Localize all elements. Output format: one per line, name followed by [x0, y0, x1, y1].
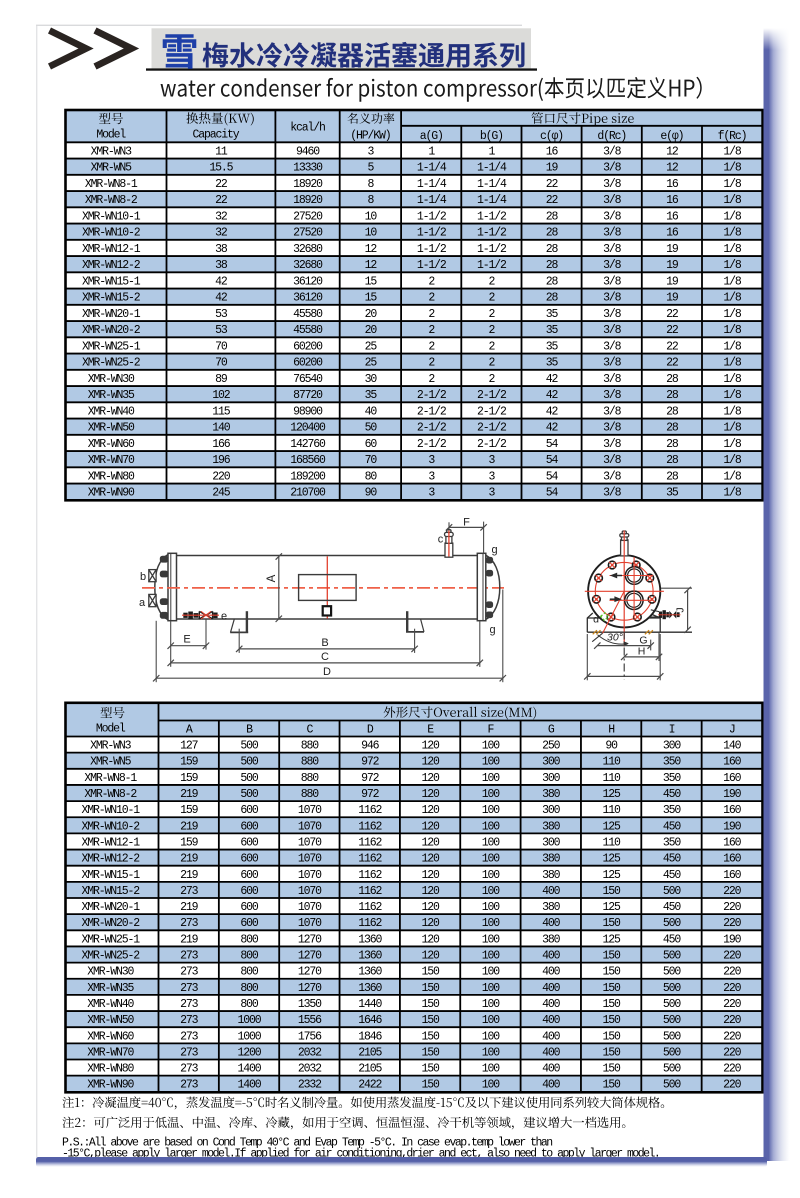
svg-text:273: 273	[180, 1014, 199, 1027]
svg-text:400: 400	[542, 1079, 561, 1092]
svg-text:28: 28	[546, 259, 559, 272]
svg-text:28: 28	[666, 438, 679, 451]
svg-text:45580: 45580	[293, 324, 323, 337]
svg-text:1000: 1000	[237, 1014, 261, 1027]
svg-text:500: 500	[663, 998, 682, 1011]
svg-text:3/8: 3/8	[603, 340, 622, 353]
svg-text:12: 12	[666, 162, 679, 175]
svg-text:XMR-WN15-1: XMR-WN15-1	[81, 869, 140, 882]
svg-text:20: 20	[365, 324, 378, 337]
svg-text:500: 500	[663, 1014, 682, 1027]
svg-text:220: 220	[723, 901, 742, 914]
svg-text:54: 54	[546, 454, 559, 467]
svg-text:219: 219	[180, 820, 199, 833]
svg-text:102: 102	[212, 389, 231, 402]
svg-text:XMR-WN30: XMR-WN30	[88, 373, 135, 386]
svg-text:120: 120	[421, 885, 440, 898]
svg-text:120: 120	[421, 853, 440, 866]
svg-text:800: 800	[240, 982, 259, 995]
svg-text:1/8: 1/8	[723, 340, 742, 353]
svg-text:90: 90	[605, 740, 618, 753]
svg-text:273: 273	[180, 1063, 199, 1076]
svg-text:40: 40	[365, 405, 378, 418]
svg-text:127: 127	[180, 740, 198, 753]
svg-text:110: 110	[602, 772, 621, 785]
svg-text:880: 880	[301, 788, 320, 801]
svg-text:1400: 1400	[237, 1079, 261, 1092]
svg-text:90: 90	[365, 487, 378, 500]
svg-text:100: 100	[482, 885, 501, 898]
svg-text:1-1/4: 1-1/4	[417, 194, 447, 207]
svg-text:42: 42	[546, 373, 559, 386]
svg-text:500: 500	[663, 966, 682, 979]
svg-text:150: 150	[602, 966, 621, 979]
svg-text:120: 120	[421, 740, 440, 753]
svg-text:220: 220	[723, 1030, 742, 1043]
svg-text:160: 160	[723, 804, 742, 817]
svg-text:500: 500	[240, 740, 259, 753]
svg-text:100: 100	[482, 917, 501, 930]
svg-text:J: J	[729, 723, 735, 736]
svg-text:1070: 1070	[298, 917, 322, 930]
svg-text:g: g	[492, 544, 498, 556]
svg-text:190: 190	[723, 820, 742, 833]
svg-text:3/8: 3/8	[603, 243, 622, 256]
svg-text:125: 125	[602, 869, 621, 882]
svg-text:220: 220	[723, 1046, 742, 1059]
svg-text:XMR-WN20-1: XMR-WN20-1	[81, 901, 140, 914]
svg-text:35: 35	[546, 357, 559, 370]
svg-text:3/8: 3/8	[603, 422, 622, 435]
svg-text:100: 100	[482, 804, 501, 817]
svg-text:80: 80	[365, 470, 378, 483]
svg-text:1/8: 1/8	[723, 227, 742, 240]
svg-text:32680: 32680	[293, 259, 323, 272]
svg-text:1-1/2: 1-1/2	[477, 259, 507, 272]
svg-text:36120: 36120	[293, 292, 323, 305]
svg-text:XMR-WN20-2: XMR-WN20-2	[82, 324, 141, 337]
svg-text:1162: 1162	[358, 901, 382, 914]
svg-text:1270: 1270	[298, 966, 322, 979]
svg-text:42: 42	[546, 422, 559, 435]
svg-text:400: 400	[542, 982, 561, 995]
svg-text:350: 350	[663, 772, 682, 785]
svg-text:28: 28	[666, 389, 679, 402]
svg-text:140: 140	[723, 740, 742, 753]
svg-text:2-1/2: 2-1/2	[477, 438, 507, 451]
svg-text:1/8: 1/8	[723, 162, 742, 175]
svg-text:1350: 1350	[298, 998, 322, 1011]
svg-text:15: 15	[365, 292, 378, 305]
svg-text:XMR-WN15-1: XMR-WN15-1	[82, 275, 141, 288]
svg-text:120: 120	[421, 756, 440, 769]
svg-text:450: 450	[663, 901, 682, 914]
svg-text:100: 100	[482, 1063, 501, 1076]
svg-text:120400: 120400	[290, 422, 326, 435]
svg-text:500: 500	[240, 772, 259, 785]
svg-text:15.5: 15.5	[209, 162, 233, 175]
svg-text:160: 160	[723, 837, 742, 850]
svg-text:273: 273	[180, 966, 199, 979]
svg-text:45580: 45580	[293, 308, 323, 321]
svg-text:380: 380	[542, 788, 561, 801]
svg-text:J: J	[675, 607, 687, 612]
svg-text:1440: 1440	[358, 998, 382, 1011]
svg-text:450: 450	[663, 933, 682, 946]
svg-text:273: 273	[180, 1030, 199, 1043]
svg-text:350: 350	[663, 837, 682, 850]
svg-text:1-1/4: 1-1/4	[417, 162, 447, 175]
svg-text:800: 800	[240, 998, 259, 1011]
svg-text:150: 150	[421, 998, 440, 1011]
svg-text:273: 273	[180, 982, 199, 995]
svg-text:16: 16	[666, 194, 679, 207]
svg-text:150: 150	[421, 1030, 440, 1043]
svg-text:XMR-WN25-1: XMR-WN25-1	[81, 933, 140, 946]
svg-text:18920: 18920	[293, 194, 323, 207]
svg-text:1000: 1000	[237, 1030, 261, 1043]
svg-text:1-1/2: 1-1/2	[417, 227, 447, 240]
svg-text:800: 800	[240, 950, 259, 963]
svg-text:140: 140	[212, 422, 231, 435]
svg-text:150: 150	[602, 1014, 621, 1027]
svg-text:1070: 1070	[298, 869, 322, 882]
svg-text:19: 19	[666, 275, 679, 288]
svg-text:54: 54	[546, 470, 559, 483]
svg-text:70: 70	[215, 357, 228, 370]
svg-text:125: 125	[602, 853, 621, 866]
svg-text:1756: 1756	[298, 1030, 322, 1043]
svg-text:3/8: 3/8	[603, 454, 622, 467]
svg-text:972: 972	[361, 788, 380, 801]
svg-text:800: 800	[240, 966, 259, 979]
svg-text:500: 500	[663, 1030, 682, 1043]
svg-text:XMR-WN35: XMR-WN35	[87, 982, 134, 995]
svg-text:100: 100	[482, 837, 501, 850]
svg-text:150: 150	[602, 982, 621, 995]
svg-text:600: 600	[240, 820, 259, 833]
svg-text:1070: 1070	[298, 901, 322, 914]
svg-text:27520: 27520	[293, 227, 323, 240]
svg-text:38: 38	[215, 243, 228, 256]
svg-text:XMR-WN90: XMR-WN90	[87, 1079, 134, 1092]
svg-text:25: 25	[365, 340, 378, 353]
svg-text:50: 50	[365, 422, 378, 435]
svg-text:100: 100	[482, 820, 501, 833]
svg-text:22: 22	[215, 194, 228, 207]
svg-text:160: 160	[723, 756, 742, 769]
svg-text:1/8: 1/8	[723, 405, 742, 418]
svg-text:500: 500	[240, 756, 259, 769]
svg-text:1360: 1360	[358, 982, 382, 995]
svg-text:160: 160	[723, 853, 742, 866]
svg-text:16: 16	[666, 210, 679, 223]
svg-text:150: 150	[602, 998, 621, 1011]
svg-text:3/8: 3/8	[603, 373, 622, 386]
svg-text:XMR-WN8-2: XMR-WN8-2	[84, 788, 137, 801]
svg-text:9460: 9460	[296, 145, 320, 158]
svg-text:120: 120	[421, 917, 440, 930]
svg-text:120: 120	[421, 837, 440, 850]
svg-text:XMR-WN15-2: XMR-WN15-2	[81, 885, 140, 898]
svg-text:42: 42	[546, 405, 559, 418]
svg-text:2332: 2332	[298, 1079, 322, 1092]
svg-text:22: 22	[666, 324, 679, 337]
svg-text:30°: 30°	[607, 632, 623, 644]
svg-text:28: 28	[666, 422, 679, 435]
svg-text:XMR-WN3: XMR-WN3	[91, 145, 133, 158]
svg-text:400: 400	[542, 998, 561, 1011]
svg-text:115: 115	[212, 405, 231, 418]
svg-text:12: 12	[365, 259, 378, 272]
svg-text:32: 32	[215, 227, 228, 240]
svg-text:XMR-WN60: XMR-WN60	[87, 1030, 134, 1043]
svg-text:3/8: 3/8	[603, 194, 622, 207]
svg-text:300: 300	[663, 740, 682, 753]
svg-text:972: 972	[361, 772, 380, 785]
svg-text:100: 100	[482, 982, 501, 995]
svg-text:XMR-WN70: XMR-WN70	[87, 1046, 134, 1059]
svg-text:1-1/2: 1-1/2	[477, 227, 507, 240]
svg-text:450: 450	[663, 869, 682, 882]
svg-text:3/8: 3/8	[603, 259, 622, 272]
svg-text:300: 300	[542, 772, 561, 785]
svg-text:3/8: 3/8	[603, 210, 622, 223]
svg-text:35: 35	[546, 340, 559, 353]
svg-text:3/8: 3/8	[603, 324, 622, 337]
svg-text:220: 220	[723, 885, 742, 898]
svg-text:220: 220	[723, 917, 742, 930]
svg-text:d: d	[593, 614, 599, 626]
svg-text:220: 220	[723, 982, 742, 995]
svg-text:12: 12	[666, 145, 679, 158]
svg-text:22: 22	[666, 357, 679, 370]
svg-text:XMR-WN12-1: XMR-WN12-1	[82, 243, 141, 256]
svg-text:168560: 168560	[290, 454, 326, 467]
svg-text:f(Rc): f(Rc)	[718, 130, 747, 143]
svg-text:54: 54	[546, 438, 559, 451]
svg-text:150: 150	[602, 1030, 621, 1043]
svg-text:400: 400	[542, 917, 561, 930]
svg-text:1/8: 1/8	[723, 275, 742, 288]
svg-text:500: 500	[663, 1046, 682, 1059]
svg-text:150: 150	[421, 1014, 440, 1027]
svg-text:159: 159	[180, 804, 199, 817]
svg-text:1162: 1162	[358, 869, 382, 882]
svg-text:150: 150	[602, 885, 621, 898]
svg-text:160: 160	[723, 772, 742, 785]
svg-text:219: 219	[180, 901, 199, 914]
svg-text:1/8: 1/8	[723, 210, 742, 223]
svg-text:972: 972	[361, 756, 380, 769]
svg-text:400: 400	[542, 950, 561, 963]
svg-text:190: 190	[723, 933, 742, 946]
svg-text:189200: 189200	[290, 470, 326, 483]
svg-text:XMR-WN50: XMR-WN50	[87, 1014, 134, 1027]
svg-text:219: 219	[180, 788, 199, 801]
svg-text:600: 600	[240, 885, 259, 898]
svg-text:150: 150	[421, 1079, 440, 1092]
svg-text:100: 100	[482, 1030, 501, 1043]
svg-text:XMR-WN80: XMR-WN80	[88, 470, 135, 483]
svg-text:196: 196	[212, 454, 231, 467]
svg-text:219: 219	[180, 869, 199, 882]
svg-text:2-1/2: 2-1/2	[417, 438, 447, 451]
svg-text:120: 120	[421, 788, 440, 801]
svg-text:500: 500	[663, 982, 682, 995]
svg-text:XMR-WN35: XMR-WN35	[88, 389, 135, 402]
svg-text:1/8: 1/8	[723, 389, 742, 402]
svg-text:18920: 18920	[293, 178, 323, 191]
svg-text:125: 125	[602, 788, 621, 801]
svg-text:220: 220	[723, 950, 742, 963]
svg-text:125: 125	[602, 933, 621, 946]
svg-text:400: 400	[542, 1014, 561, 1027]
svg-text:16: 16	[666, 178, 679, 191]
svg-text:273: 273	[180, 1046, 199, 1059]
svg-text:1360: 1360	[358, 933, 382, 946]
svg-text:I: I	[669, 723, 675, 736]
svg-text:28: 28	[666, 470, 679, 483]
svg-text:42: 42	[546, 389, 559, 402]
svg-text:1/8: 1/8	[723, 178, 742, 191]
svg-text:1-1/4: 1-1/4	[477, 194, 507, 207]
svg-text:100: 100	[482, 901, 501, 914]
svg-text:100: 100	[482, 772, 501, 785]
svg-text:220: 220	[723, 998, 742, 1011]
svg-text:273: 273	[180, 950, 199, 963]
svg-text:22: 22	[546, 178, 559, 191]
svg-text:B: B	[321, 637, 328, 649]
svg-text:A: A	[266, 574, 278, 582]
svg-text:XMR-WN10-2: XMR-WN10-2	[81, 820, 140, 833]
svg-text:300: 300	[542, 804, 561, 817]
svg-text:g: g	[490, 624, 496, 636]
svg-text:c(φ): c(φ)	[540, 130, 563, 143]
svg-text:XMR-WN80: XMR-WN80	[87, 1063, 134, 1076]
svg-text:400: 400	[542, 885, 561, 898]
svg-text:150: 150	[602, 950, 621, 963]
svg-text:100: 100	[482, 1079, 501, 1092]
svg-text:110: 110	[602, 756, 621, 769]
svg-text:100: 100	[482, 869, 501, 882]
svg-text:35: 35	[546, 324, 559, 337]
svg-text:380: 380	[542, 901, 561, 914]
svg-text:XMR-WN5: XMR-WN5	[91, 162, 133, 175]
svg-text:1556: 1556	[298, 1014, 322, 1027]
svg-text:1/8: 1/8	[723, 308, 742, 321]
svg-text:1162: 1162	[358, 820, 382, 833]
svg-text:22: 22	[666, 340, 679, 353]
svg-text:600: 600	[240, 917, 259, 930]
svg-text:2-1/2: 2-1/2	[477, 405, 507, 418]
svg-text:220: 220	[723, 1063, 742, 1076]
svg-text:54: 54	[546, 487, 559, 500]
svg-text:3/8: 3/8	[603, 292, 622, 305]
svg-text:1162: 1162	[358, 804, 382, 817]
svg-text:d(Rc): d(Rc)	[597, 130, 626, 143]
svg-text:110: 110	[602, 804, 621, 817]
svg-text:150: 150	[602, 1046, 621, 1059]
svg-text:400: 400	[542, 1063, 561, 1076]
svg-text:120: 120	[421, 820, 440, 833]
svg-text:2032: 2032	[298, 1063, 322, 1076]
svg-text:1/8: 1/8	[723, 194, 742, 207]
svg-text:3/8: 3/8	[603, 470, 622, 483]
svg-text:2-1/2: 2-1/2	[417, 389, 447, 402]
svg-text:16: 16	[666, 227, 679, 240]
svg-text:380: 380	[542, 853, 561, 866]
svg-text:70: 70	[215, 340, 228, 353]
svg-text:1/8: 1/8	[723, 373, 742, 386]
svg-text:28: 28	[546, 227, 559, 240]
svg-text:XMR-WN25-2: XMR-WN25-2	[82, 357, 141, 370]
svg-text:98900: 98900	[293, 405, 323, 418]
svg-text:19: 19	[546, 162, 559, 175]
svg-text:120: 120	[421, 933, 440, 946]
svg-text:2-1/2: 2-1/2	[477, 389, 507, 402]
svg-text:150: 150	[602, 1063, 621, 1076]
svg-text:2032: 2032	[298, 1046, 322, 1059]
svg-text:1/8: 1/8	[723, 487, 742, 500]
svg-text:42: 42	[215, 292, 228, 305]
svg-text:220: 220	[723, 966, 742, 979]
svg-text:H: H	[608, 723, 614, 736]
svg-text:e: e	[221, 611, 227, 623]
svg-text:450: 450	[663, 820, 682, 833]
svg-text:kcal/h: kcal/h	[290, 122, 325, 135]
svg-text:XMR-WN20-2: XMR-WN20-2	[81, 917, 140, 930]
svg-text:60: 60	[365, 438, 378, 451]
svg-text:53: 53	[215, 308, 228, 321]
svg-text:1070: 1070	[298, 853, 322, 866]
svg-text:1/8: 1/8	[723, 145, 742, 158]
svg-text:159: 159	[180, 837, 199, 850]
svg-text:219: 219	[180, 933, 199, 946]
svg-text:H: H	[638, 646, 646, 658]
svg-text:125: 125	[602, 901, 621, 914]
svg-text:273: 273	[180, 998, 199, 1011]
svg-text:100: 100	[482, 1046, 501, 1059]
svg-text:220: 220	[212, 470, 231, 483]
svg-text:1-1/2: 1-1/2	[417, 259, 447, 272]
svg-text:1070: 1070	[298, 804, 322, 817]
svg-text:245: 245	[212, 487, 231, 500]
svg-text:XMR-WN12-2: XMR-WN12-2	[82, 259, 141, 272]
svg-text:XMR-WN12-2: XMR-WN12-2	[81, 853, 140, 866]
svg-text:380: 380	[542, 869, 561, 882]
svg-text:1-1/4: 1-1/4	[477, 162, 507, 175]
svg-text:D: D	[323, 666, 331, 678]
svg-text:20: 20	[365, 308, 378, 321]
svg-text:100: 100	[482, 1014, 501, 1027]
svg-text:2422: 2422	[358, 1079, 382, 1092]
svg-text:1162: 1162	[358, 885, 382, 898]
svg-text:273: 273	[180, 917, 199, 930]
svg-text:159: 159	[180, 756, 199, 769]
svg-text:450: 450	[663, 853, 682, 866]
svg-text:19: 19	[666, 292, 679, 305]
svg-text:100: 100	[482, 756, 501, 769]
svg-text:380: 380	[542, 933, 561, 946]
svg-text:Model: Model	[96, 128, 126, 141]
svg-text:1200: 1200	[237, 1046, 261, 1059]
svg-text:XMR-WN25-2: XMR-WN25-2	[81, 950, 140, 963]
svg-text:e(φ): e(φ)	[660, 130, 683, 143]
svg-text:XMR-WN15-2: XMR-WN15-2	[82, 292, 141, 305]
svg-text:450: 450	[663, 788, 682, 801]
svg-text:500: 500	[663, 950, 682, 963]
